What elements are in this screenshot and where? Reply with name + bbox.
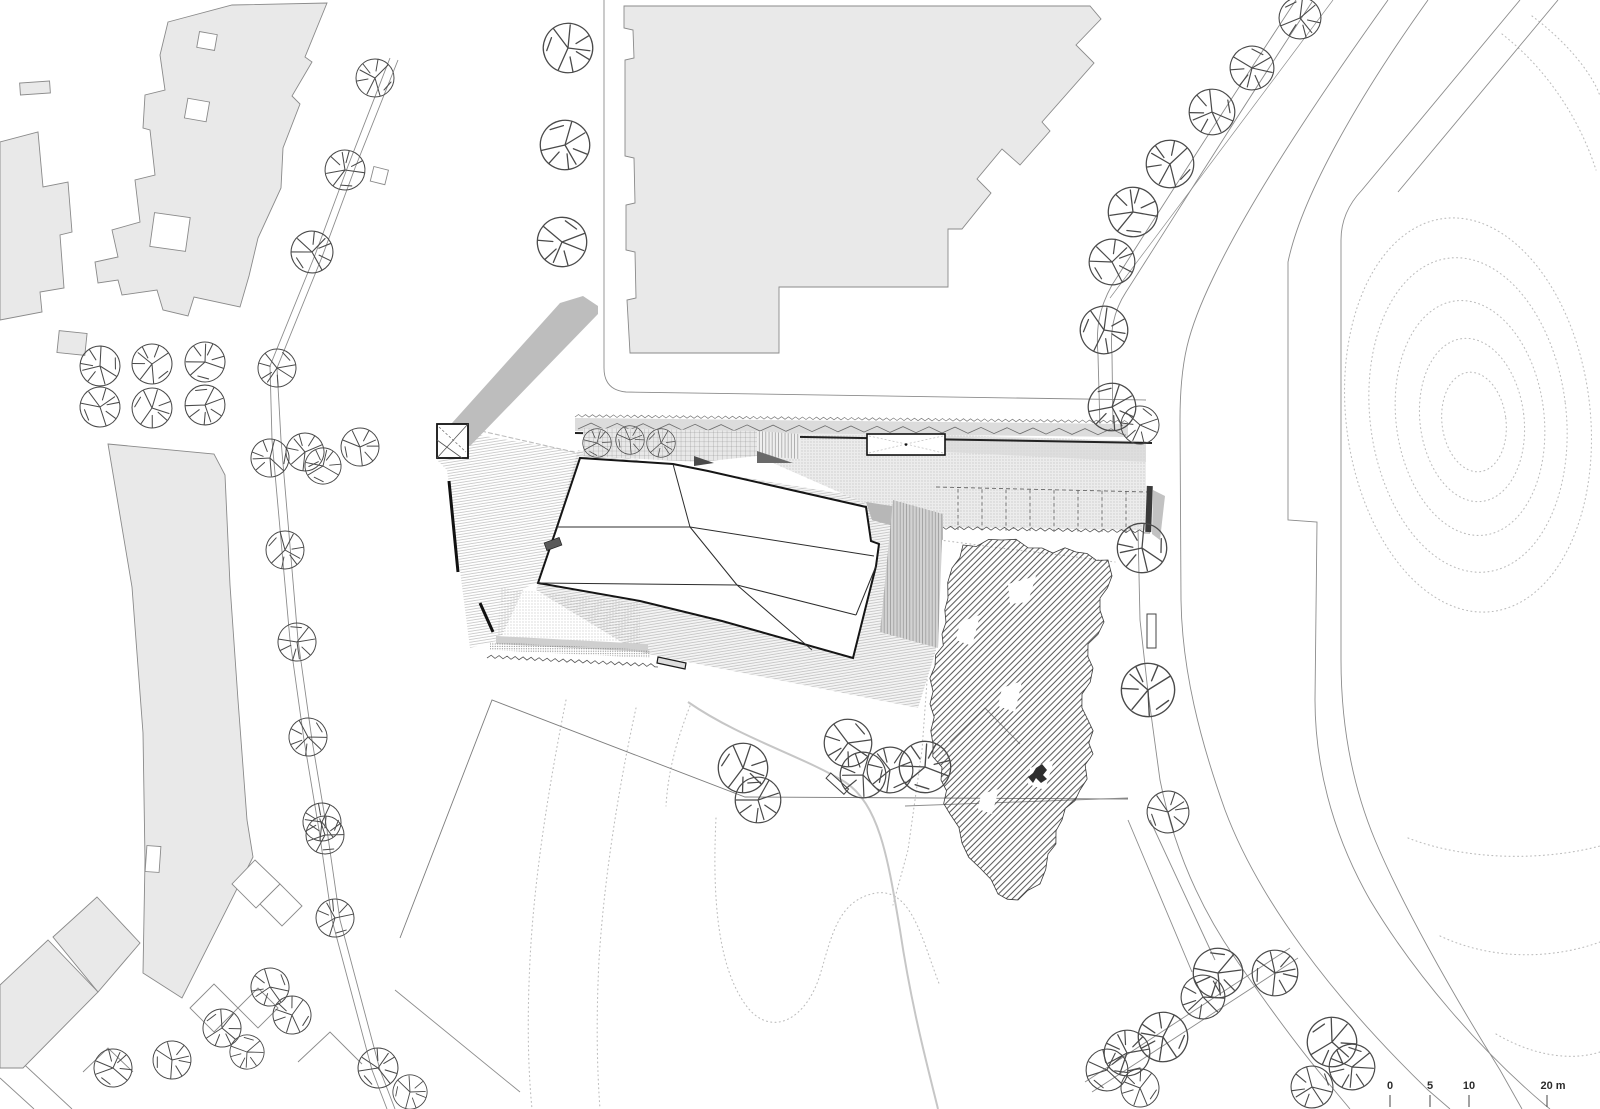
- contour: [1502, 34, 1596, 170]
- trail: [1128, 820, 1192, 972]
- tree: [73, 380, 127, 434]
- tree: [715, 740, 771, 796]
- tree: [387, 1069, 434, 1109]
- scale-label-20m: 20 m: [1540, 1080, 1565, 1092]
- tree: [1145, 139, 1194, 188]
- park-contour: [1323, 204, 1600, 627]
- bench: [826, 773, 849, 794]
- street-edge-left: [277, 60, 398, 1109]
- tree: [284, 713, 331, 760]
- contour: [666, 706, 690, 806]
- contour: [1532, 16, 1600, 96]
- tree: [177, 377, 233, 433]
- contour: [1496, 1034, 1600, 1056]
- bench: [1147, 614, 1156, 648]
- road-edge: [1180, 0, 1450, 1109]
- outline-building: [238, 988, 278, 1028]
- tree: [266, 531, 305, 570]
- strip-notch: [145, 846, 161, 873]
- tree: [356, 1046, 400, 1090]
- tree: [1074, 300, 1134, 360]
- contour: [528, 700, 566, 1109]
- park-edge-outer: [1398, 0, 1558, 192]
- park-edge: [1341, 0, 1522, 1109]
- trail: [1150, 820, 1215, 960]
- site-plan-canvas: 0 5 10 20 m: [0, 0, 1600, 1109]
- tree: [1302, 1012, 1362, 1072]
- outline-building: [298, 1032, 362, 1064]
- contour: [1408, 838, 1600, 856]
- canopy-box: [867, 434, 945, 455]
- building-block-west: [0, 132, 72, 320]
- building-small: [57, 331, 87, 356]
- tree: [129, 341, 176, 388]
- path: [0, 1078, 34, 1109]
- building-strip-west: [108, 444, 253, 998]
- building-block-north: [624, 6, 1101, 353]
- park-contour: [1436, 368, 1512, 475]
- tree: [93, 1048, 134, 1089]
- tree: [178, 335, 231, 388]
- path: [395, 990, 520, 1092]
- park-contour: [1410, 332, 1533, 507]
- tree: [1243, 941, 1307, 1005]
- tree: [1184, 939, 1253, 1008]
- footpath: [688, 702, 938, 1109]
- canopy-dot: [905, 443, 908, 446]
- tree: [1116, 658, 1180, 722]
- tree: [1119, 1067, 1161, 1109]
- scale-label-10: 10: [1463, 1080, 1475, 1092]
- street-edge-left: [270, 58, 390, 1109]
- contour: [1440, 936, 1600, 955]
- tree: [145, 1033, 199, 1087]
- tree: [535, 215, 589, 269]
- entry-pavilion: [437, 424, 468, 458]
- tree: [317, 142, 373, 198]
- scale-label-0: 0: [1387, 1080, 1393, 1092]
- avenue-sidewalk: [1097, 0, 1296, 428]
- brick-strip-pattern: [583, 428, 757, 462]
- roof-cutout: [197, 32, 218, 51]
- park-contour: [1351, 246, 1584, 584]
- tree: [298, 808, 352, 862]
- site-plan: 0 5 10 20 m: [0, 0, 1600, 1109]
- contour: [597, 708, 636, 1109]
- tree: [356, 59, 394, 97]
- tree: [1132, 1006, 1194, 1068]
- tree: [244, 432, 296, 484]
- scale-bar: 0 5 10 20 m: [1387, 1080, 1566, 1107]
- park-contour: [1382, 292, 1558, 544]
- roof-cutout: [184, 98, 209, 122]
- kiosk-square: [370, 167, 388, 185]
- central-site: [437, 296, 1165, 900]
- tree: [531, 111, 599, 179]
- contour: [715, 818, 940, 1022]
- building-small: [20, 81, 51, 95]
- garden-path: [1138, 443, 1350, 1109]
- tree: [1180, 80, 1244, 144]
- tree: [256, 347, 298, 389]
- tree: [309, 892, 362, 945]
- outline-building: [83, 1048, 133, 1072]
- outline-building: [190, 984, 238, 1032]
- east-gate-shadow: [1152, 490, 1165, 540]
- tree: [860, 740, 920, 800]
- tree: [1140, 784, 1197, 841]
- tree: [270, 993, 313, 1036]
- avenue-tree-line: [1110, 0, 1333, 298]
- tree: [129, 385, 175, 431]
- tree: [1226, 42, 1279, 95]
- tree: [536, 16, 600, 80]
- scale-label-5: 5: [1427, 1080, 1433, 1092]
- tree: [1099, 178, 1168, 247]
- tree: [1283, 1058, 1340, 1109]
- avenue-sidewalk: [1111, 2, 1312, 428]
- tree: [1085, 1048, 1128, 1091]
- courtyard-cutout: [150, 213, 190, 252]
- tree: [270, 615, 323, 668]
